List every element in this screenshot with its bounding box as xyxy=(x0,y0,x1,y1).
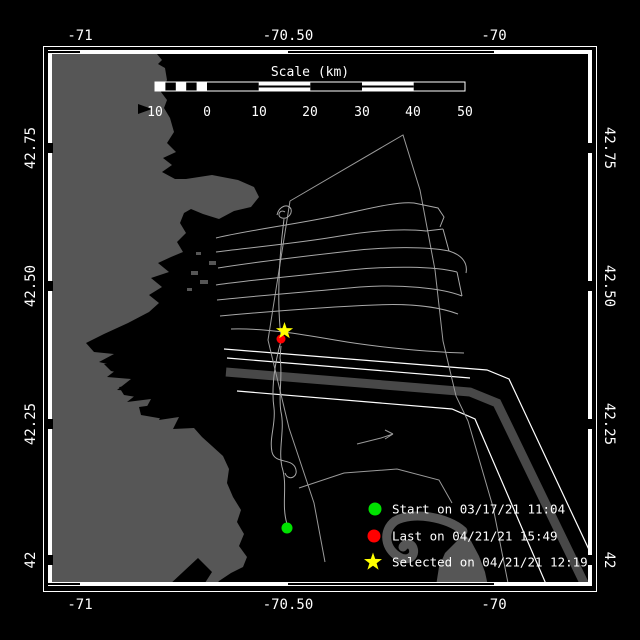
lat-label-right-42: 42 xyxy=(601,552,617,569)
legend-green-circle-icon xyxy=(369,503,382,516)
scale-bar xyxy=(155,82,465,91)
scale-tick-label: 50 xyxy=(457,105,473,120)
whale-track-map-screen: Scale (km) 10 0 10 20 30 40 50 Start on … xyxy=(0,0,640,640)
scale-tick-label: 0 xyxy=(203,105,211,120)
map-canvas[interactable]: Scale (km) 10 0 10 20 30 40 50 Start on … xyxy=(0,0,640,640)
legend: Start on 03/17/21 11:04 Last on 04/21/21… xyxy=(364,502,588,570)
lon-label-bottom-71: -71 xyxy=(67,597,92,613)
lat-label-left-4250: 42.50 xyxy=(23,265,39,307)
scale-tick-label: 30 xyxy=(354,105,370,120)
lat-label-left-4275: 42.75 xyxy=(23,127,39,169)
lat-label-right-4225: 42.25 xyxy=(601,403,617,445)
lon-label-bottom-70: -70 xyxy=(481,597,506,613)
lon-label-top-70: -70 xyxy=(481,28,506,44)
start-position-marker[interactable] xyxy=(282,523,293,534)
scale-tick-label: 10 xyxy=(251,105,267,120)
scale-tick-label: 10 xyxy=(147,105,163,120)
legend-start-label: Start on 03/17/21 11:04 xyxy=(392,502,565,517)
lon-label-top-71: -71 xyxy=(67,28,92,44)
scale-tick-label: 40 xyxy=(405,105,421,120)
legend-selected-label: Selected on 04/21/21 12:19 xyxy=(392,555,588,570)
lon-label-bottom-7050: -70.50 xyxy=(263,597,314,613)
lon-label-top-7050: -70.50 xyxy=(263,28,314,44)
lat-label-right-4275: 42.75 xyxy=(601,127,617,169)
scale-bar-title: Scale (km) xyxy=(271,65,349,80)
scale-tick-label: 20 xyxy=(302,105,318,120)
lat-label-right-4250: 42.50 xyxy=(601,265,617,307)
lat-label-left-42: 42 xyxy=(23,552,39,569)
legend-red-circle-icon xyxy=(368,530,381,543)
legend-last-label: Last on 04/21/21 15:49 xyxy=(392,529,558,544)
lat-label-left-4225: 42.25 xyxy=(23,403,39,445)
